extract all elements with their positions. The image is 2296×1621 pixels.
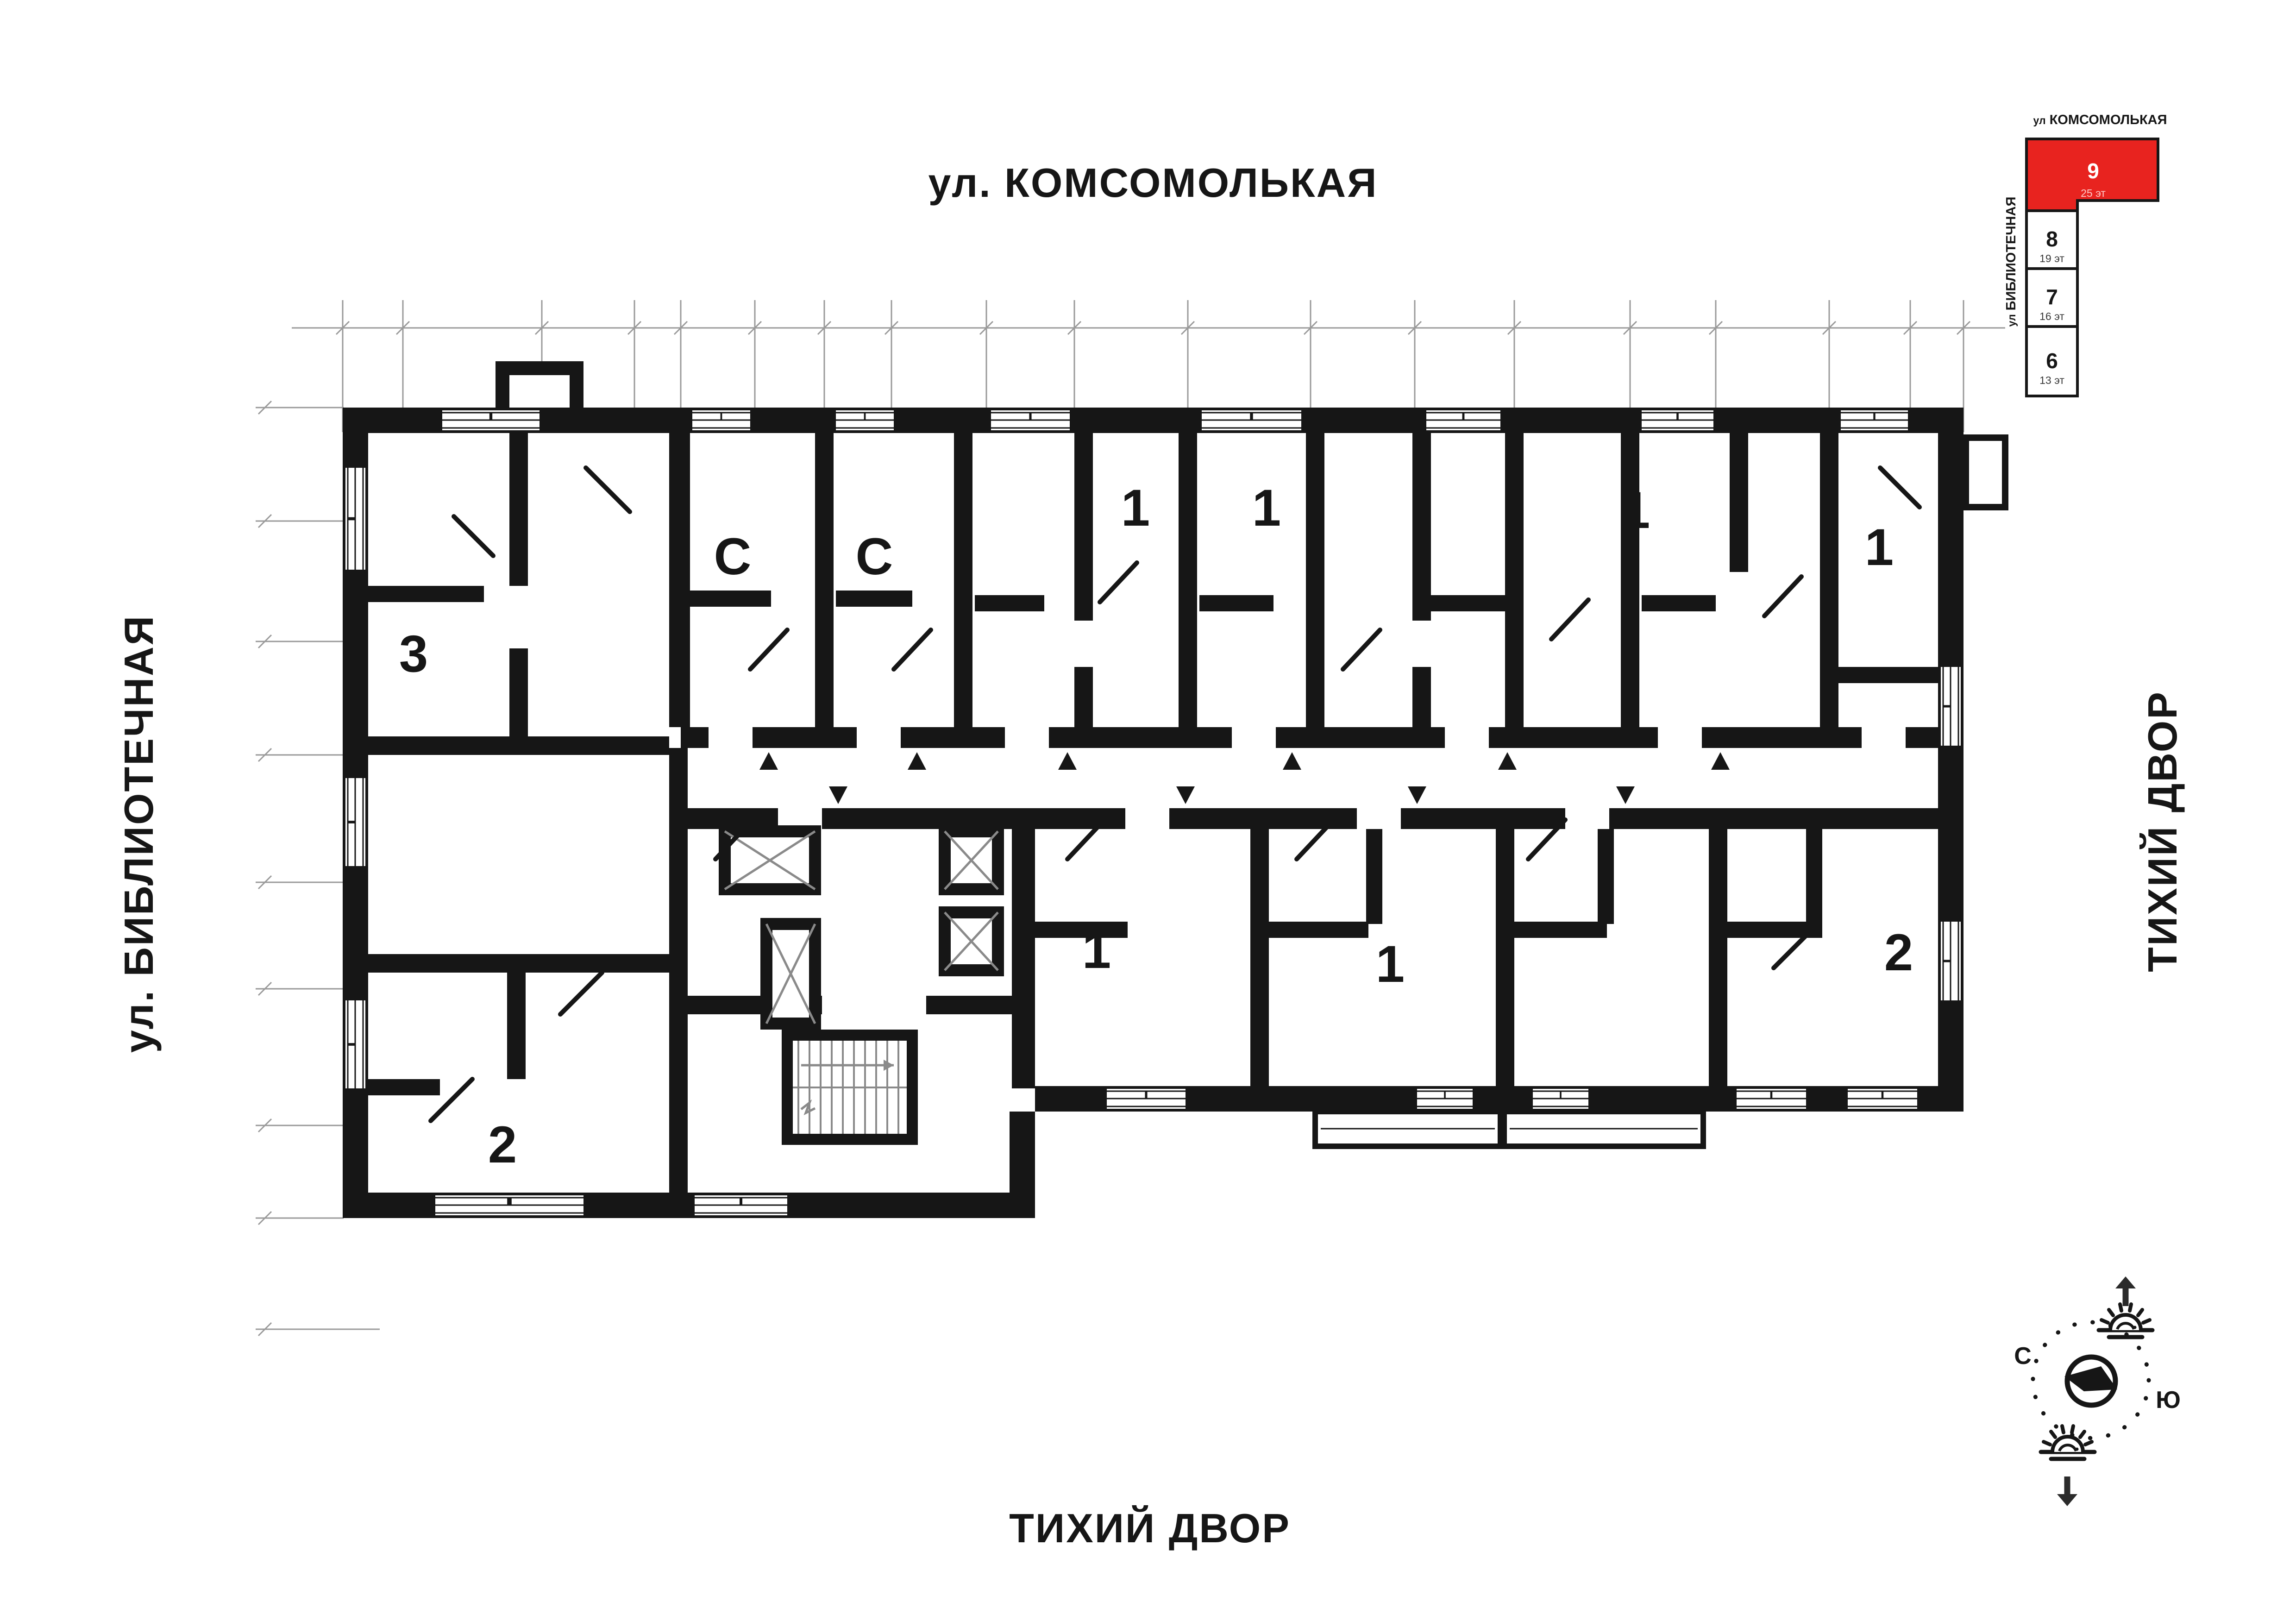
building-block-8[interactable]: 8 19 эт (2026, 211, 2077, 269)
building-selector: улКОМСОМОЛЬКАЯ улБИБЛИОТЕЧНАЯ 9 25 эт 8 … (2004, 113, 2167, 396)
building-block-9[interactable]: 9 25 эт (2026, 139, 2158, 211)
apartment-label-studio-b[interactable]: С (856, 528, 893, 585)
building-block-7[interactable]: 7 16 эт (2026, 269, 2077, 327)
apartment-label-1b[interactable]: 1 (1252, 479, 1281, 537)
street-label-left: ул. БИБЛИОТЕЧНАЯ (116, 615, 162, 1053)
apartment-label-studio-a[interactable]: С (714, 528, 752, 585)
apartment-label-2-left[interactable]: 2 (488, 1116, 517, 1174)
apartment-label-1c[interactable]: 1 (1621, 481, 1650, 539)
south-arrow-icon (2057, 1476, 2077, 1506)
balconies (1315, 1112, 1703, 1146)
street-label-right: ТИХИЙ ДВОР (2139, 691, 2185, 972)
north-arrow-icon (2115, 1276, 2136, 1306)
minimap-street-top: улКОМСОМОЛЬКАЯ (2033, 113, 2167, 127)
compass-north-label: С (2014, 1343, 2032, 1370)
door-swings (431, 468, 1920, 1121)
entry-markers (759, 752, 1730, 804)
building-block-7-floors: 16 эт (2039, 310, 2064, 322)
apartment-label-1-bot-a[interactable]: 1 (1082, 921, 1111, 979)
floorplan-page: 3 С С 1 1 1 1 1 1 2 2 ул. КОМСОМОЛЬКАЯ у… (0, 0, 2296, 1621)
apartment-label-3[interactable]: 3 (399, 625, 428, 683)
apartment-label-1-bot-b[interactable]: 1 (1376, 935, 1405, 993)
street-label-top: ул. КОМСОМОЛЬКАЯ (928, 160, 1378, 206)
building-block-6-floors: 13 эт (2039, 374, 2064, 386)
building-block-8-floors: 19 эт (2039, 252, 2064, 264)
minimap-street-left: улБИБЛИОТЕЧНАЯ (2004, 197, 2019, 327)
building-block-6-number: 6 (2046, 349, 2058, 373)
apartment-label-1a[interactable]: 1 (1121, 479, 1150, 537)
elevator-shafts (725, 831, 998, 1024)
apartment-label-1-right[interactable]: 1 (1865, 518, 1894, 576)
street-label-bottom: ТИХИЙ ДВОР (1009, 1505, 1291, 1551)
building-block-8-number: 8 (2046, 227, 2058, 251)
building-block-9-number: 9 (2087, 159, 2099, 183)
compass: С Ю (2014, 1276, 2181, 1506)
building-block-6[interactable]: 6 13 эт (2026, 327, 2077, 396)
staircase (787, 1035, 912, 1139)
street-labels: ул. КОМСОМОЛЬКАЯ ул. БИБЛИОТЕЧНАЯ ТИХИЙ … (116, 160, 2185, 1551)
building-block-9-floors: 25 эт (2081, 187, 2106, 199)
sunset-icon (2041, 1426, 2095, 1459)
sunrise-icon (2099, 1304, 2152, 1337)
apartment-label-2-right[interactable]: 2 (1884, 924, 1913, 981)
building-block-7-number: 7 (2046, 285, 2058, 309)
compass-south-label: Ю (2156, 1387, 2181, 1414)
